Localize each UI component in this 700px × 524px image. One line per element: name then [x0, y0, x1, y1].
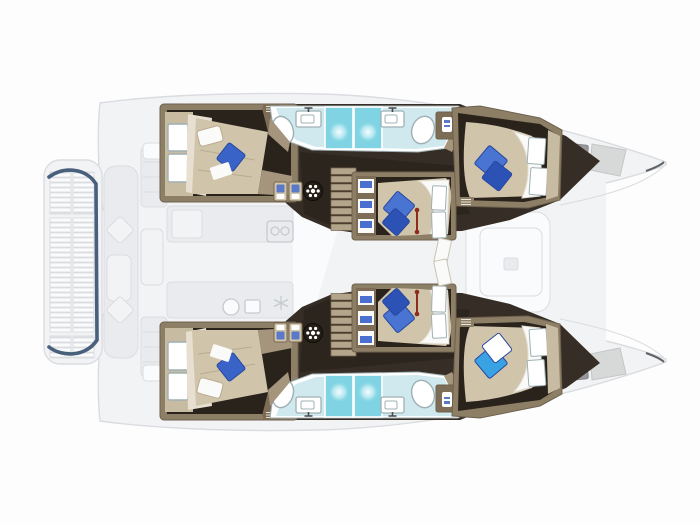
hull-window: [168, 124, 188, 151]
shower-light: [328, 121, 350, 143]
hatch-wheel-icon: [304, 182, 323, 201]
platform-louvers: [73, 218, 94, 332]
cockpit-seat: [141, 229, 163, 285]
galley-sink-basin: [245, 300, 260, 313]
shelf-item-blue: [360, 201, 372, 208]
forepeak-door-panel: [527, 137, 546, 164]
galley-sink-icon: [223, 299, 239, 315]
platform-louvers: [50, 218, 71, 332]
galley-module: [172, 210, 202, 238]
bathroom: [268, 106, 470, 152]
hull-window: [168, 154, 188, 182]
table-accessory: [504, 258, 518, 270]
platform-louvers: [50, 172, 71, 214]
catamaran-layout-plan: [0, 0, 700, 524]
bathroom-cabinet-icon: [442, 117, 452, 132]
storage-locker-icon: [289, 182, 302, 201]
sink-unit: [296, 108, 321, 127]
forepeak-door-panel: [529, 167, 548, 195]
stern-platform: [44, 160, 102, 364]
cabin-door-panel: [431, 186, 446, 211]
cabin-side-wall: [546, 130, 560, 200]
storage-locker-icon: [274, 182, 287, 201]
cockpit-seat: [107, 255, 131, 301]
plan-canvas: [0, 0, 700, 524]
shelf-item-blue: [360, 221, 372, 228]
shelf-item-blue: [360, 181, 372, 188]
shower-light: [357, 121, 379, 143]
cabin-door-panel: [432, 212, 447, 238]
sink-unit: [381, 108, 404, 127]
forward-cabin: [452, 106, 562, 208]
vent-grille: [458, 197, 474, 206]
